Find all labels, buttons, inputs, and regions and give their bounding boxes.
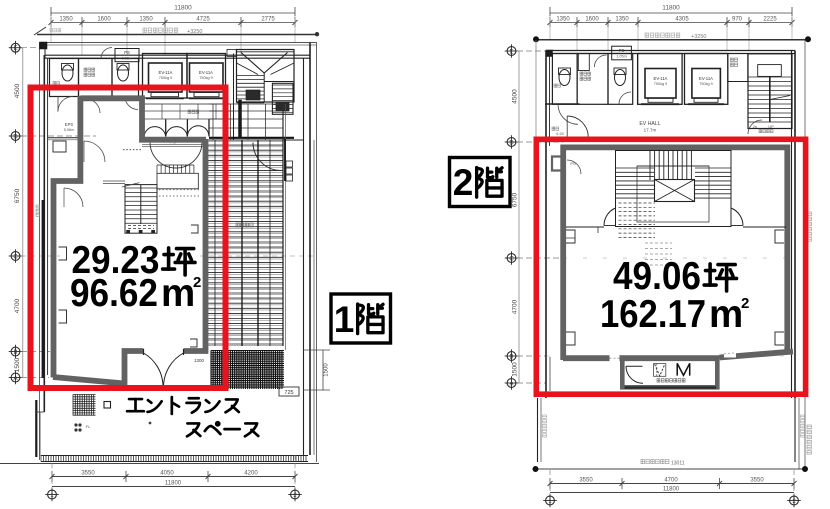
svg-text:1350: 1350 — [615, 17, 629, 23]
svg-text:EV-11A: EV-11A — [654, 76, 668, 81]
svg-text:4700: 4700 — [14, 298, 21, 313]
svg-text:1.05m: 1.05m — [122, 57, 133, 61]
svg-text:EV-11A: EV-11A — [699, 76, 713, 81]
svg-text:EPS: EPS — [65, 122, 74, 127]
svg-text:4700: 4700 — [664, 478, 678, 484]
svg-text:13011: 13011 — [671, 461, 685, 467]
svg-text:970: 970 — [732, 17, 743, 23]
svg-text:17.7m: 17.7m — [644, 128, 657, 133]
svg-text:2: 2 — [193, 274, 201, 291]
svg-text:E: E — [13, 46, 17, 52]
svg-text:1600: 1600 — [97, 17, 111, 23]
svg-text:4725: 4725 — [196, 17, 210, 23]
svg-text:11800: 11800 — [174, 5, 192, 12]
svg-text:2225: 2225 — [763, 17, 777, 23]
svg-text:4700: 4700 — [512, 299, 519, 314]
svg-text:3550: 3550 — [81, 471, 95, 477]
svg-text:C: C — [13, 254, 18, 260]
svg-text:2: 2 — [453, 162, 474, 203]
svg-text:1350: 1350 — [139, 17, 153, 23]
svg-text:6.65: 6.65 — [556, 132, 563, 136]
svg-text:C: C — [509, 256, 514, 262]
svg-text:PS: PS — [619, 48, 625, 53]
svg-text:EV-11A: EV-11A — [159, 70, 173, 75]
svg-text:2n: 2n — [753, 124, 757, 129]
svg-text:1600: 1600 — [585, 17, 599, 23]
svg-text:1350: 1350 — [556, 17, 570, 23]
svg-text:11800: 11800 — [663, 487, 680, 493]
svg-text:4500: 4500 — [512, 89, 519, 104]
svg-text:1.05m: 1.05m — [616, 55, 627, 59]
svg-text:D: D — [13, 134, 18, 140]
svg-text:EV HALL: EV HALL — [639, 121, 660, 127]
svg-text:FL: FL — [86, 424, 91, 429]
svg-text:1500: 1500 — [512, 362, 519, 377]
svg-text:750kg 9: 750kg 9 — [654, 82, 668, 86]
svg-text:D: D — [509, 140, 514, 146]
svg-text:B: B — [509, 354, 513, 360]
svg-text:PS: PS — [570, 161, 576, 166]
svg-text:162.17: 162.17 — [600, 293, 706, 336]
svg-text:4305: 4305 — [675, 17, 689, 23]
svg-text:96.62: 96.62 — [70, 272, 158, 315]
svg-text:11800: 11800 — [662, 5, 680, 12]
svg-text:m: m — [709, 293, 743, 336]
svg-text:6750: 6750 — [512, 192, 519, 207]
svg-text:6750: 6750 — [14, 188, 21, 203]
svg-text:1300: 1300 — [194, 358, 205, 363]
svg-text:11800: 11800 — [165, 481, 182, 487]
svg-text:750kg 9: 750kg 9 — [199, 76, 213, 80]
svg-text:3550: 3550 — [750, 478, 764, 484]
svg-text:B: B — [13, 350, 17, 356]
svg-text:+3250: +3250 — [691, 34, 706, 40]
svg-text:3550: 3550 — [579, 478, 593, 484]
svg-text:1350: 1350 — [59, 17, 73, 23]
svg-text:m: m — [161, 272, 195, 315]
svg-text:1: 1 — [334, 299, 355, 340]
svg-text:49.06: 49.06 — [613, 255, 701, 298]
svg-text:4500: 4500 — [14, 83, 21, 98]
svg-text:A: A — [13, 376, 17, 382]
svg-text:PS: PS — [124, 50, 130, 55]
svg-text:5.96m: 5.96m — [64, 128, 75, 132]
svg-text:750kg 9: 750kg 9 — [699, 82, 713, 86]
svg-text:1500: 1500 — [14, 357, 21, 372]
svg-text:4200: 4200 — [244, 471, 258, 477]
svg-text:UP: UP — [768, 124, 774, 129]
svg-text:750kg 9: 750kg 9 — [159, 76, 173, 80]
svg-text:EV-11A: EV-11A — [199, 70, 213, 75]
svg-text:725: 725 — [284, 390, 293, 396]
svg-text:1500: 1500 — [324, 363, 330, 377]
svg-text:E: E — [509, 49, 513, 55]
svg-text:2: 2 — [741, 295, 749, 312]
svg-text:2775: 2775 — [261, 17, 275, 23]
svg-text:4050: 4050 — [160, 471, 174, 477]
svg-text:A: A — [509, 381, 513, 387]
svg-text:+3250: +3250 — [187, 29, 202, 35]
